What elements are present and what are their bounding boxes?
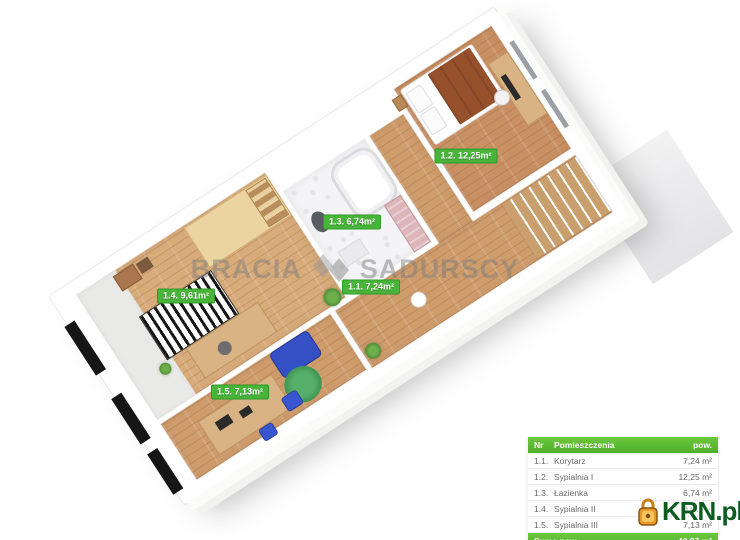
row-area: 7,24 m² <box>683 456 712 466</box>
krn-logo: KRN.pl <box>636 496 740 527</box>
room-label-sypialnia2: 1.4. 9,61m² <box>157 289 215 304</box>
legend-footer-row: Suma pow. 42,97 m² <box>528 533 718 540</box>
row-name: Korytarz <box>554 456 683 466</box>
row-name: Sypialnia I <box>554 472 678 482</box>
row-nr: 1.1. <box>534 456 554 466</box>
row-nr: 1.2. <box>534 472 554 482</box>
padlock-icon <box>636 497 660 527</box>
legend-sum-area: 42,97 m² <box>678 536 712 540</box>
room-label-korytarz: 1.1. 7,24m² <box>342 280 400 295</box>
row-nr: 1.4. <box>534 504 554 514</box>
watermark-left-text: BRACIA <box>191 254 302 285</box>
room-label-lazienka: 1.3. 6,74m² <box>323 215 381 230</box>
legend-sum-label: Suma pow. <box>534 536 678 540</box>
table-row: 1.1. Korytarz 7,24 m² <box>528 453 718 469</box>
window-icon <box>147 448 183 495</box>
room-label-sypialnia1: 1.2. 12,25m² <box>434 149 497 164</box>
krn-logo-text: KRN.pl <box>662 496 740 527</box>
room-label-sypialnia3: 1.5. 7,13m² <box>211 385 269 400</box>
legend-header-row: Nr Pomieszczenia pow. <box>528 437 718 453</box>
row-area: 12,25 m² <box>678 472 712 482</box>
floorplan-screenshot: BRACIA SADURSCY 1.1. 7,24m² 1.2. 12,25m²… <box>0 0 740 540</box>
table-row: 1.2. Sypialnia I 12,25 m² <box>528 469 718 485</box>
row-nr: 1.3. <box>534 488 554 498</box>
legend-header-name: Pomieszczenia <box>554 440 693 450</box>
legend-header-area: pow. <box>693 440 712 450</box>
row-nr: 1.5. <box>534 520 554 530</box>
legend-header-nr: Nr <box>534 440 554 450</box>
